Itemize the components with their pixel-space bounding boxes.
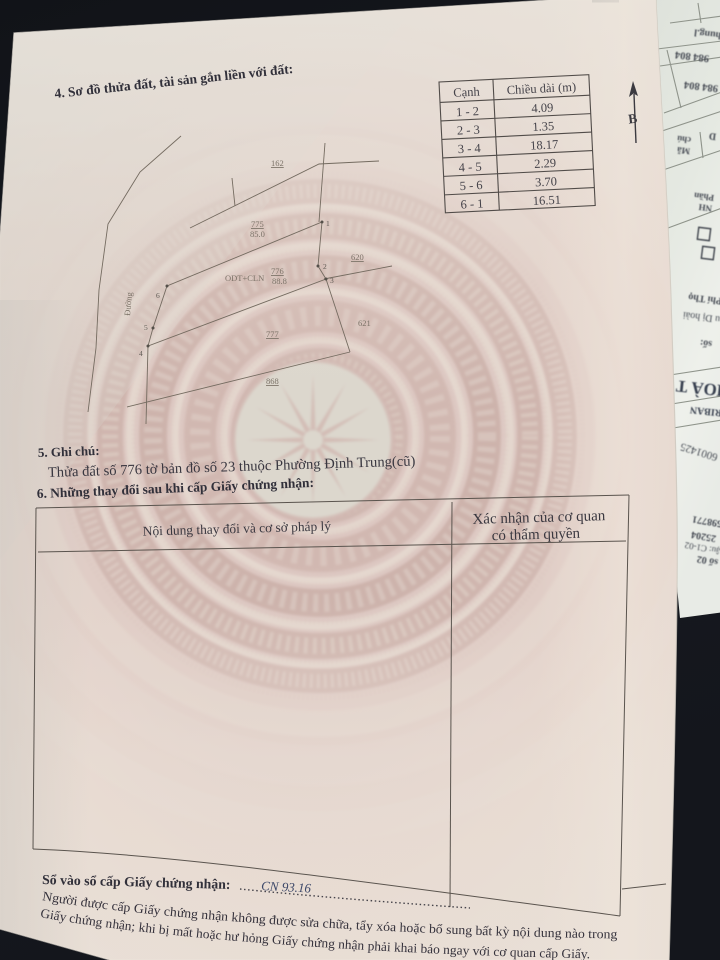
svg-text:6: 6 [156, 291, 160, 300]
svg-text:D: D [708, 130, 717, 142]
svg-text:2 - 3: 2 - 3 [457, 123, 481, 138]
svg-text:Đường: Đường [122, 291, 134, 316]
svg-text:3 - 4: 3 - 4 [458, 141, 482, 156]
svg-text:775: 775 [251, 219, 264, 229]
svg-text:5: 5 [144, 323, 148, 332]
svg-text:số:: số: [699, 337, 712, 349]
svg-text:4.09: 4.09 [531, 100, 554, 115]
svg-text:162: 162 [271, 158, 284, 168]
svg-text:2.29: 2.29 [534, 156, 557, 171]
svg-text:ODT+CLN: ODT+CLN [225, 273, 264, 283]
svg-text:1 - 2: 1 - 2 [456, 104, 480, 119]
svg-text:16.51: 16.51 [533, 193, 562, 208]
svg-text:621: 621 [358, 318, 371, 328]
svg-text:3.70: 3.70 [535, 174, 558, 189]
svg-text:868: 868 [266, 376, 279, 386]
svg-text:88.8: 88.8 [272, 276, 287, 286]
svg-text:NH: NH [698, 202, 713, 214]
svg-text:777: 777 [266, 329, 279, 339]
svg-text:CN 93.16: CN 93.16 [261, 878, 312, 896]
svg-text:chú: chú [677, 134, 692, 146]
svg-text:1: 1 [326, 219, 330, 228]
svg-text:Cạnh: Cạnh [453, 84, 481, 99]
svg-text:2: 2 [323, 262, 327, 271]
svg-text:1.35: 1.35 [532, 119, 555, 134]
svg-text:85.0: 85.0 [250, 229, 265, 239]
svg-text:B: B [627, 111, 638, 127]
svg-text:18.17: 18.17 [530, 137, 559, 152]
svg-text:776: 776 [271, 266, 284, 276]
svg-text:Mẫ: Mẫ [676, 145, 691, 157]
svg-text:5 - 6: 5 - 6 [459, 178, 483, 193]
svg-text:có thẩm quyền: có thẩm quyền [492, 526, 581, 544]
svg-text:6 - 1: 6 - 1 [460, 196, 484, 211]
svg-text:4 - 5: 4 - 5 [458, 160, 482, 175]
svg-text:3: 3 [330, 276, 334, 285]
svg-text:620: 620 [351, 252, 364, 262]
svg-text:4: 4 [139, 349, 143, 358]
svg-text:5. Ghi chú:: 5. Ghi chú: [38, 443, 100, 460]
